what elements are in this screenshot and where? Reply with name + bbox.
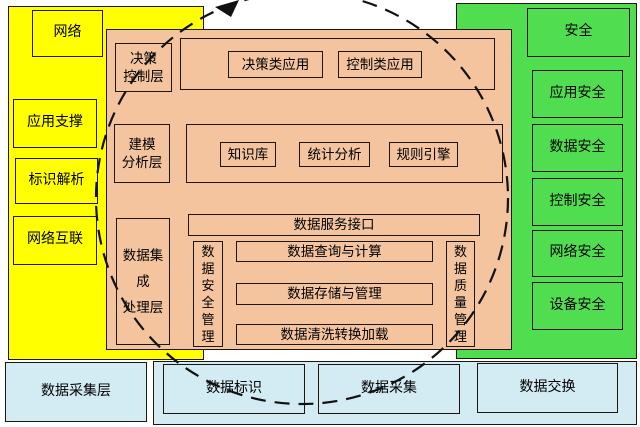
box-security: 安全 bbox=[527, 8, 630, 57]
box-data-acquisition: 数据采集 bbox=[318, 364, 460, 414]
box-app-support: 应用支撑 bbox=[13, 99, 97, 148]
box-knowledge-base: 知识库 bbox=[220, 142, 276, 167]
label-data-acquisition-layer: 数据采集层 bbox=[5, 362, 147, 422]
cycle-arrowhead-icon bbox=[215, 0, 239, 17]
box-device-security: 设备安全 bbox=[532, 282, 623, 330]
box-app-security: 应用安全 bbox=[532, 70, 623, 118]
box-network-interconnect: 网络互联 bbox=[13, 216, 97, 265]
box-control-security: 控制安全 bbox=[532, 178, 623, 226]
box-data-quality-management: 数 据 质 量 管 理 bbox=[446, 241, 475, 347]
box-data-exchange: 数据交换 bbox=[477, 363, 618, 413]
label-decision-control-layer: 决策 控制层 bbox=[115, 43, 172, 92]
box-data-security: 数据安全 bbox=[532, 124, 623, 172]
box-decision-app: 决策类应用 bbox=[228, 51, 323, 78]
box-data-storage-management: 数据存储与管理 bbox=[236, 283, 433, 305]
box-network: 网络 bbox=[32, 10, 103, 57]
box-data-identification: 数据标识 bbox=[163, 364, 305, 414]
label-data-integration-layer: 数据集 成 处理层 bbox=[116, 218, 170, 345]
box-data-cleaning-etl: 数据清洗转换加载 bbox=[236, 324, 433, 345]
box-identifier-resolution: 标识解析 bbox=[15, 158, 98, 204]
box-network-security: 网络安全 bbox=[532, 230, 623, 277]
label-modeling-analysis-layer: 建模 分析层 bbox=[114, 124, 170, 183]
box-data-query-compute: 数据查询与计算 bbox=[236, 241, 433, 262]
box-rule-engine: 规则引擎 bbox=[389, 142, 458, 167]
architecture-diagram: 网络 应用支撑 标识解析 网络互联 安全 应用安全 数据安全 控制安全 网络安全… bbox=[0, 0, 640, 427]
box-statistical-analysis: 统计分析 bbox=[299, 142, 370, 167]
box-control-app: 控制类应用 bbox=[338, 51, 422, 78]
box-data-security-management: 数 据 安 全 管 理 bbox=[193, 241, 223, 347]
box-data-service-interface: 数据服务接口 bbox=[188, 214, 480, 236]
